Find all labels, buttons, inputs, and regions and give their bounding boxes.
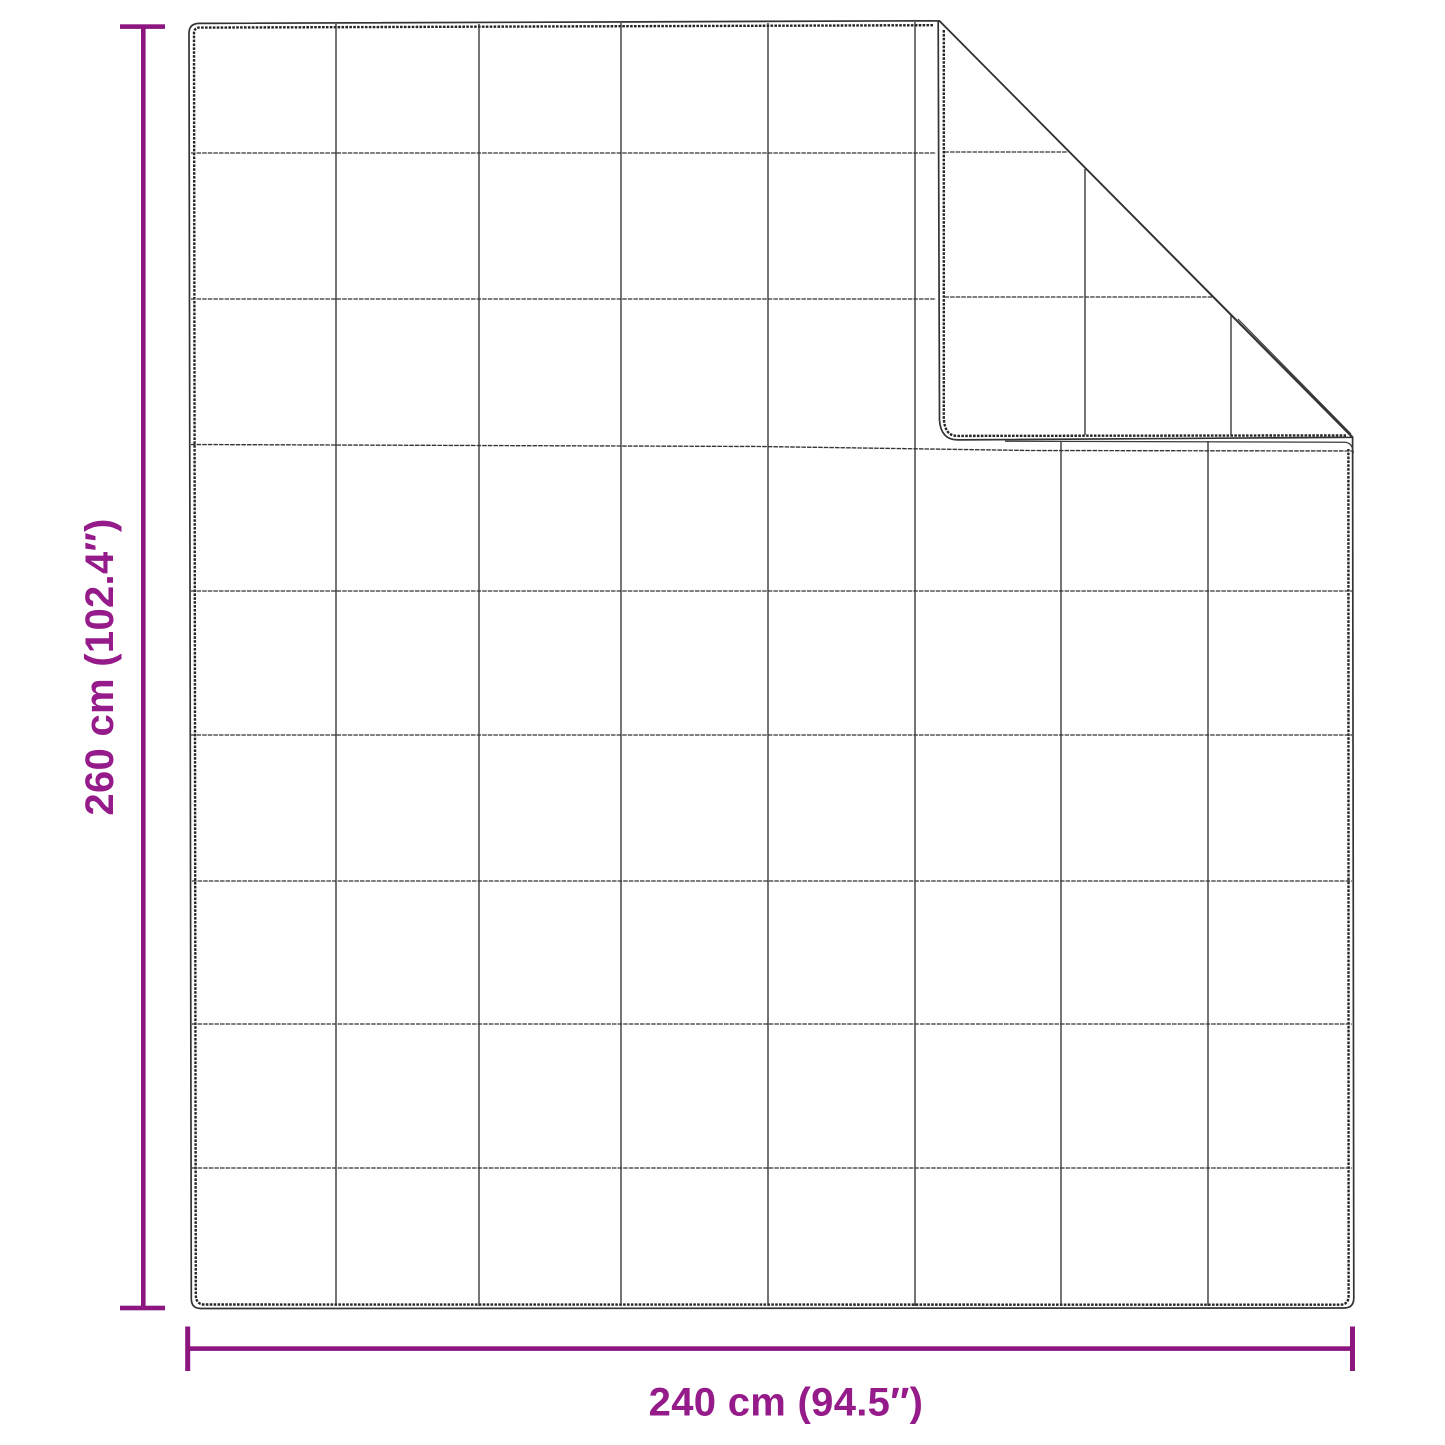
svg-text:240 cm (94.5″): 240 cm (94.5″) [649, 1381, 924, 1425]
svg-text:260 cm (102.4″): 260 cm (102.4″) [78, 518, 122, 815]
